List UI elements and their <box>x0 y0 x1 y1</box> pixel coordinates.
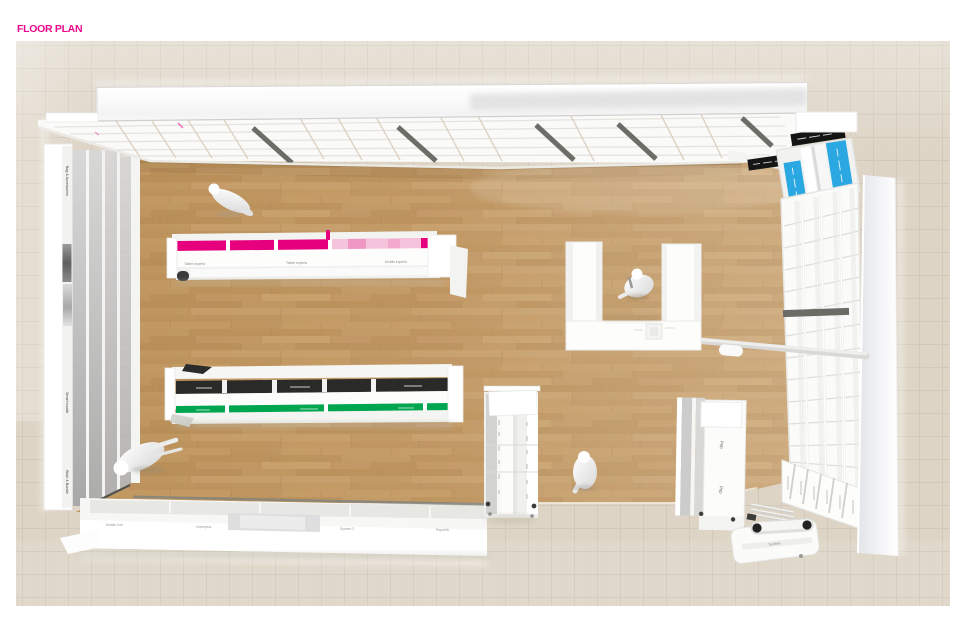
svg-text:FLOOR PLAN: FLOOR PLAN <box>17 23 82 35</box>
svg-text:Tablet experts: Tablet experts <box>286 261 307 265</box>
svg-text:Work & Bundle: Work & Bundle <box>65 470 69 494</box>
svg-text:Bag & Accessories: Bag & Accessories <box>65 166 69 196</box>
svg-text:Mobile experts: Mobile experts <box>385 260 407 264</box>
svg-text:Pop: Pop <box>719 441 724 449</box>
svg-text:Republic: Republic <box>436 528 449 532</box>
svg-text:Mobile hub: Mobile hub <box>106 523 123 527</box>
svg-text:System 2: System 2 <box>340 527 354 531</box>
svg-text:Tablet experts: Tablet experts <box>184 262 205 266</box>
svg-text:Smart bundle: Smart bundle <box>65 392 69 413</box>
svg-text:Homeplus: Homeplus <box>196 525 212 529</box>
svg-text:Pop: Pop <box>718 486 723 494</box>
